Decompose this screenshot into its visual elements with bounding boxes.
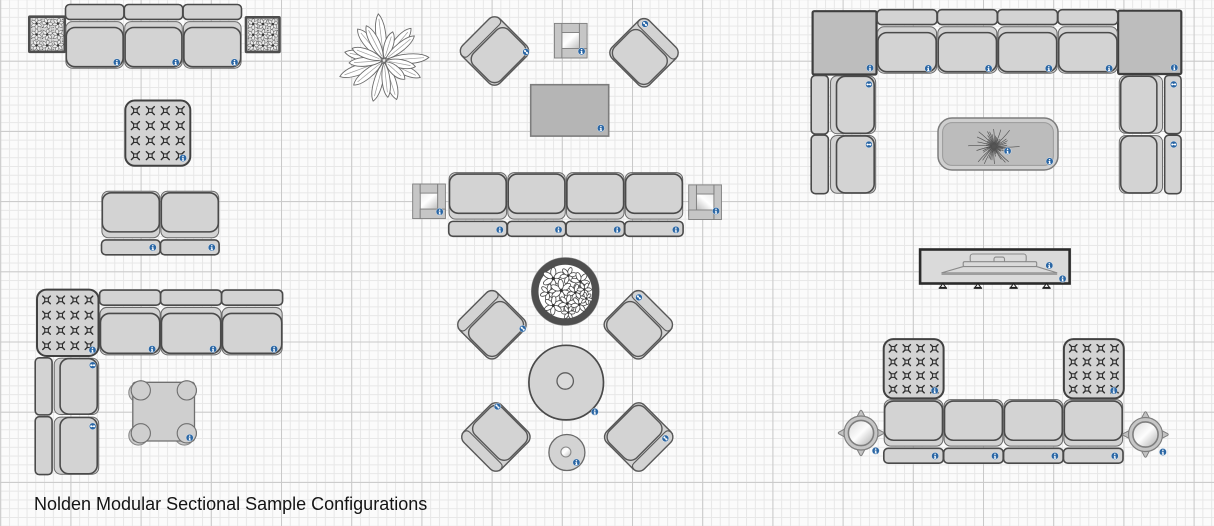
svg-text:Nolden Modular Sectional Sampl: Nolden Modular Sectional Sample Configur… [34,494,427,514]
